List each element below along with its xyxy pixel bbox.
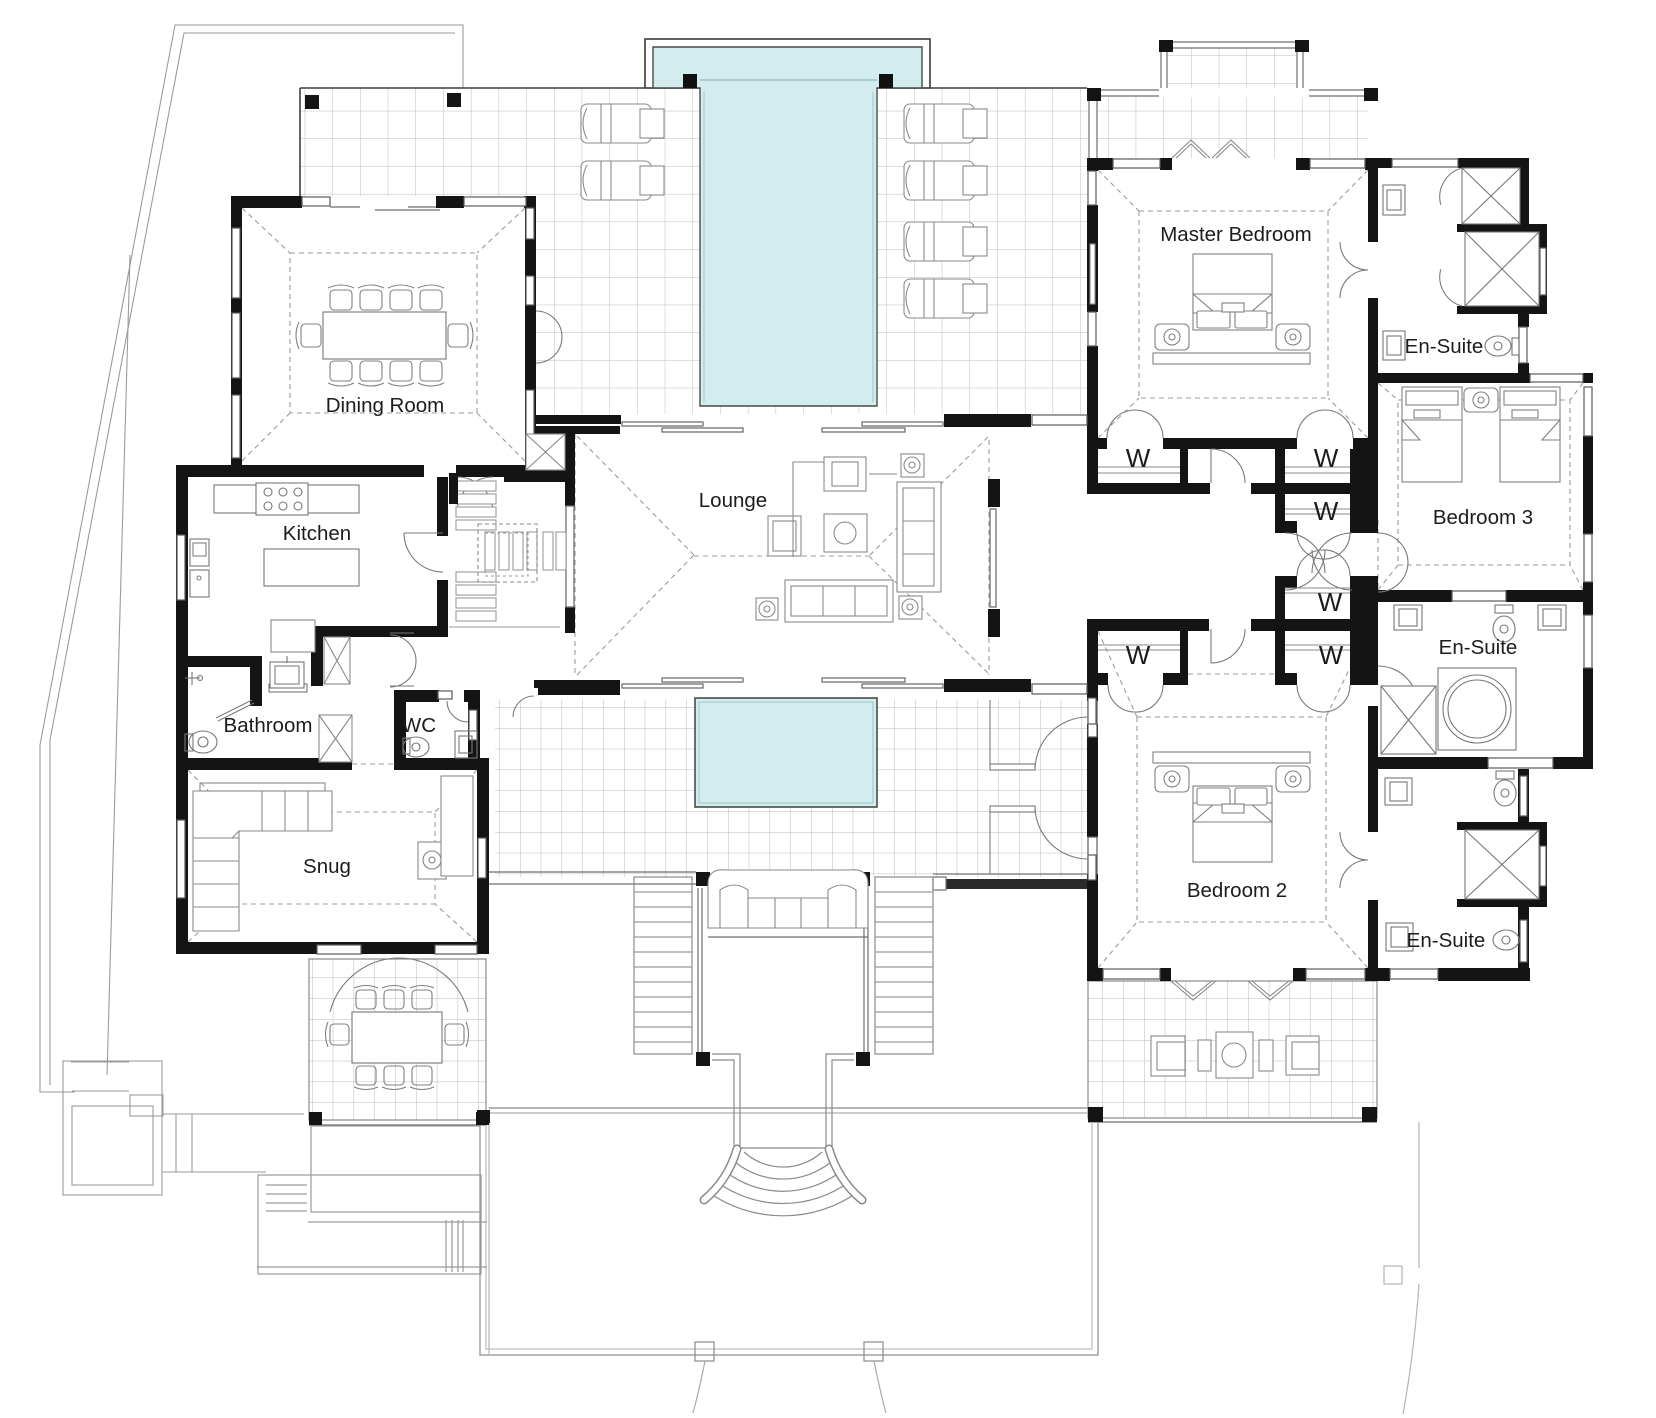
svg-text:Lounge: Lounge	[699, 489, 767, 512]
svg-text:W: W	[1318, 587, 1343, 617]
svg-text:Master Bedroom: Master Bedroom	[1160, 223, 1312, 246]
svg-text:Kitchen: Kitchen	[283, 522, 351, 545]
svg-text:W: W	[1126, 443, 1151, 473]
svg-text:W: W	[1314, 443, 1339, 473]
svg-text:En-Suite: En-Suite	[1405, 335, 1484, 358]
svg-text:En-Suite: En-Suite	[1439, 636, 1518, 659]
svg-text:Bathroom: Bathroom	[224, 714, 313, 737]
svg-text:Dining Room: Dining Room	[326, 394, 445, 417]
svg-text:Snug: Snug	[303, 855, 351, 878]
svg-text:Bedroom 2: Bedroom 2	[1187, 879, 1287, 902]
svg-text:W: W	[1314, 496, 1339, 526]
svg-text:WC: WC	[402, 714, 436, 737]
svg-text:W: W	[1126, 640, 1151, 670]
svg-text:Bedroom 3: Bedroom 3	[1433, 506, 1533, 529]
svg-text:W: W	[1319, 640, 1344, 670]
svg-text:En-Suite: En-Suite	[1407, 929, 1486, 952]
